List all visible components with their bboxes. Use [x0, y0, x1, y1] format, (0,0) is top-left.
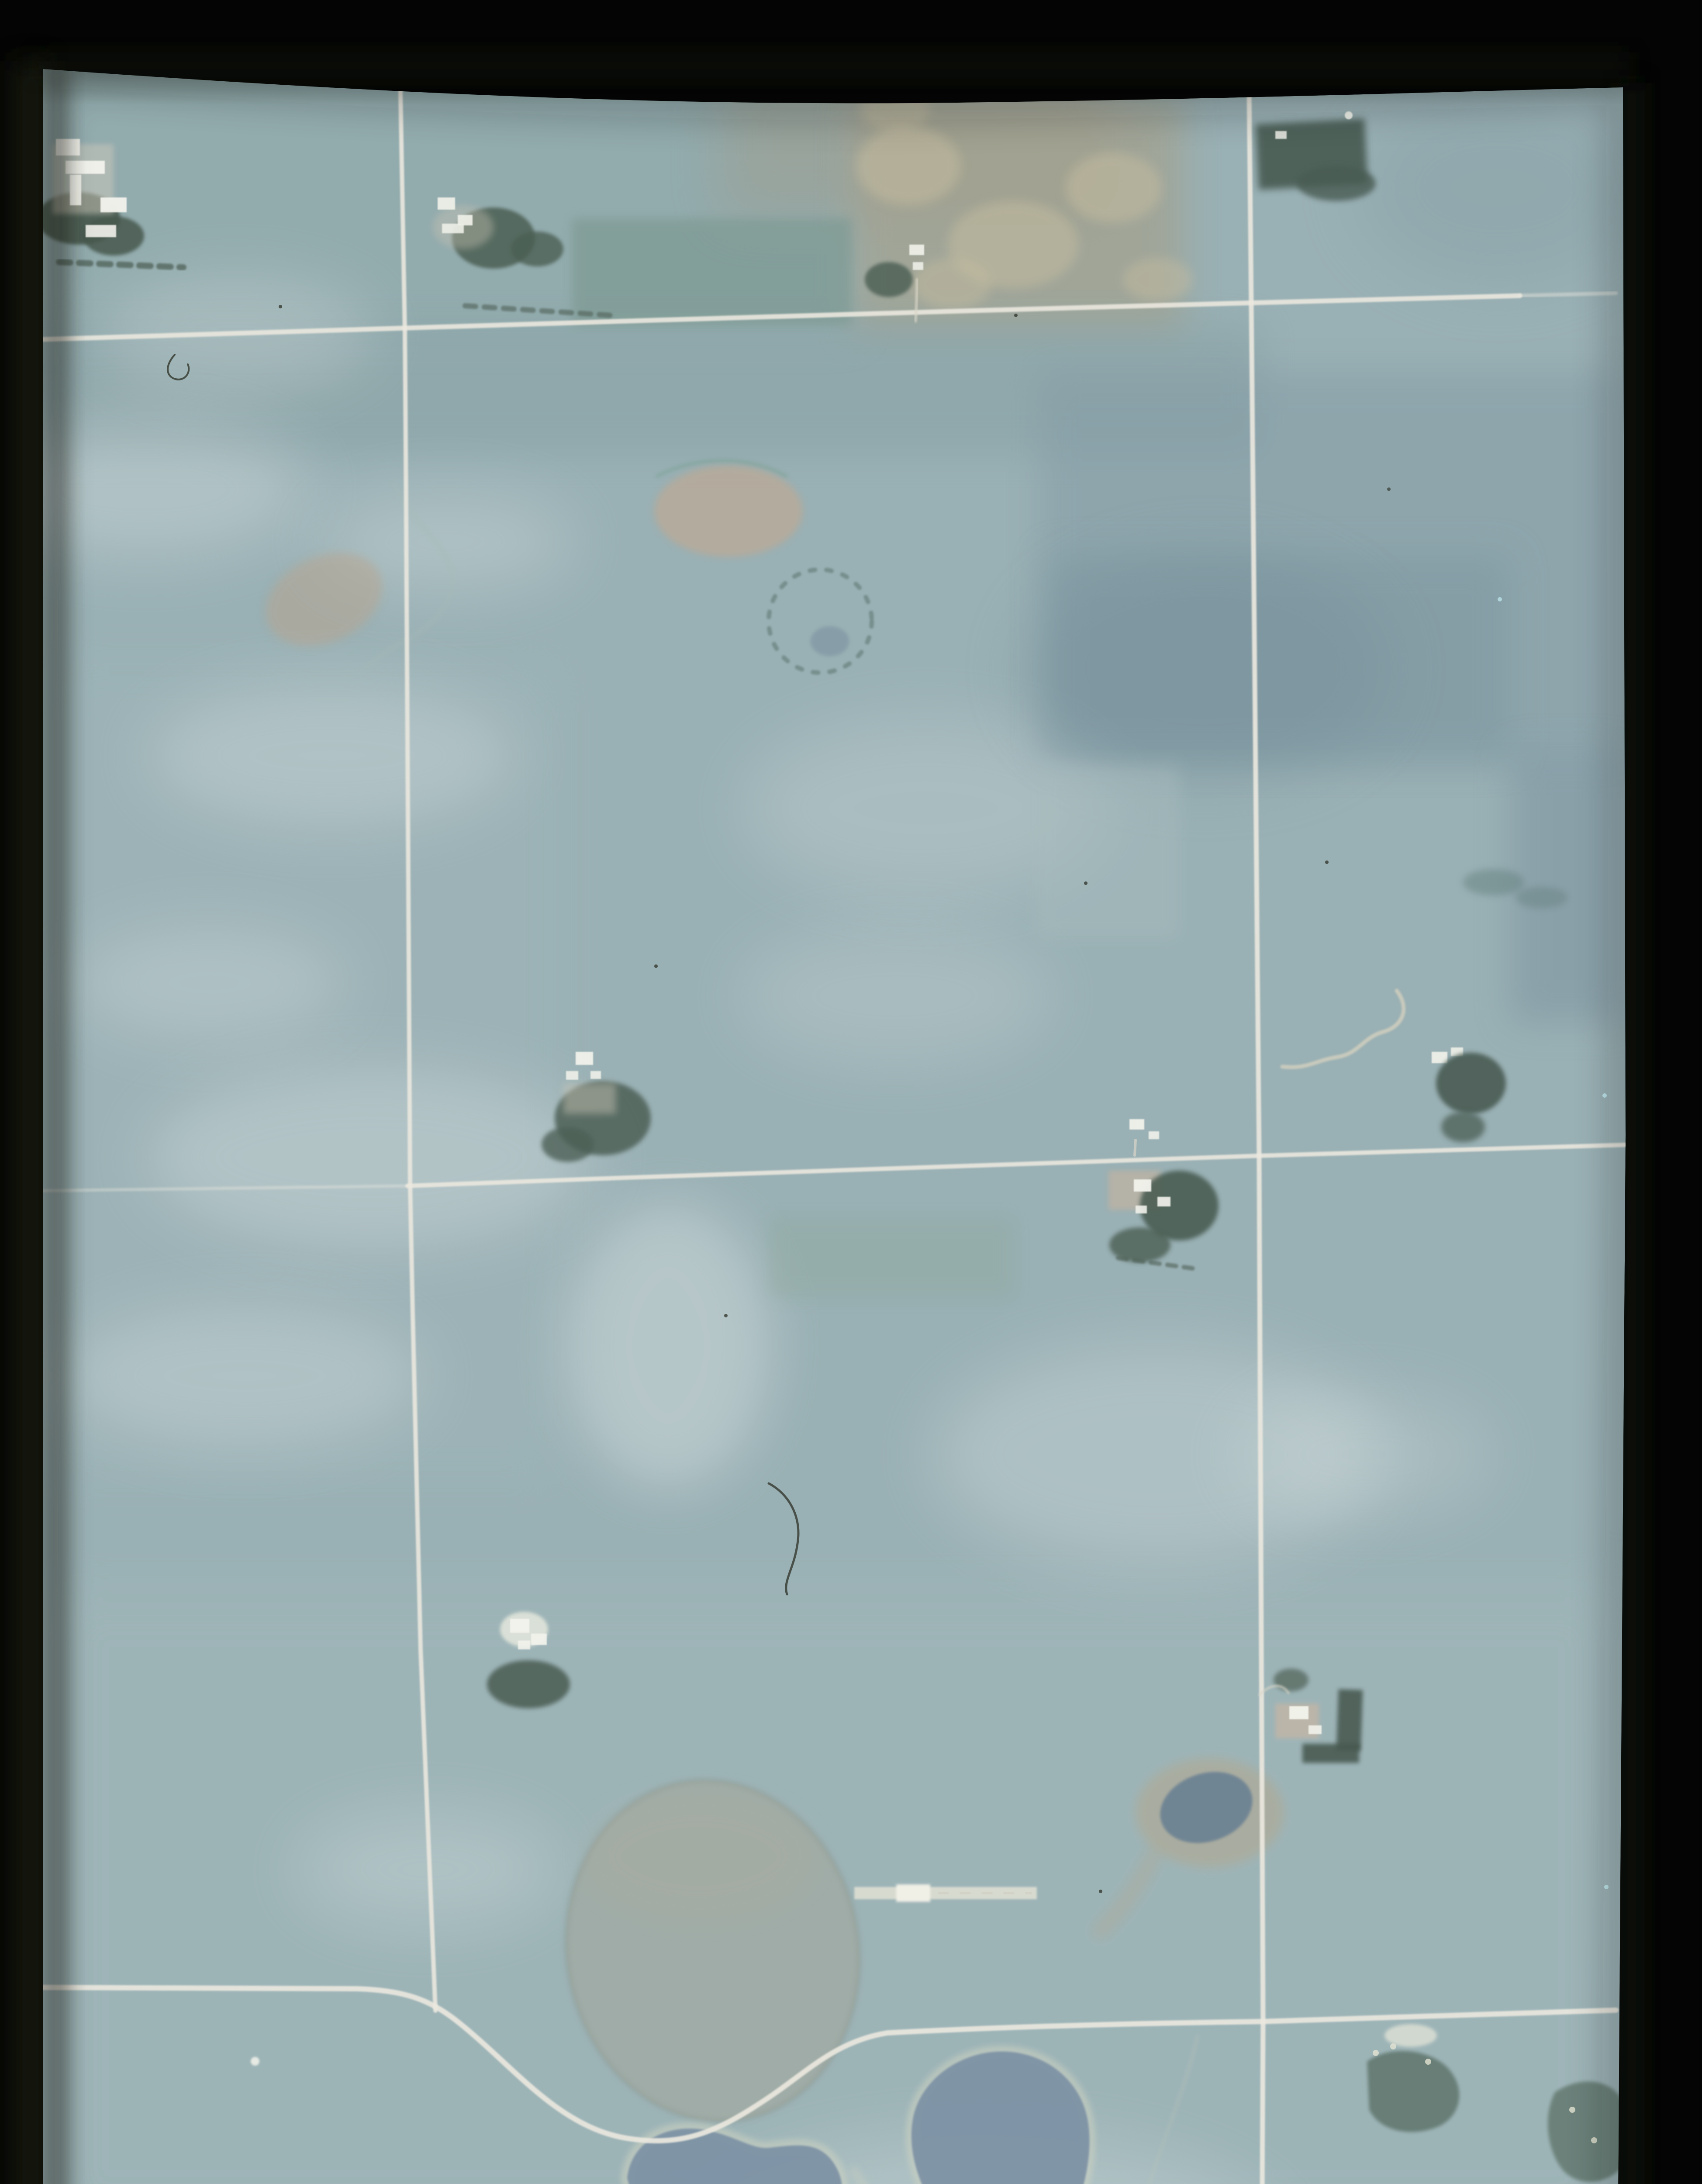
farm9-trees — [487, 1660, 570, 1708]
farm6-building-north-2 — [1149, 1131, 1159, 1139]
farm2-building — [442, 224, 464, 233]
cloud-streak-vertical — [563, 1201, 773, 1489]
farm9-building — [510, 1619, 529, 1633]
salmon-bare-patch — [654, 465, 803, 557]
farm5-building — [590, 1071, 601, 1079]
dust-speck — [1099, 1890, 1102, 1893]
airstrip-bright-blob — [896, 1884, 930, 1902]
marsh-white-patch — [1384, 2024, 1437, 2047]
dust-speck — [724, 1314, 728, 1317]
farm8-trees-small — [1274, 1669, 1308, 1691]
dark-smudge — [1516, 887, 1568, 909]
white-dot-field — [251, 2057, 259, 2066]
farm9-building-3 — [518, 1641, 530, 1649]
farm6-building-south — [1134, 1179, 1151, 1192]
cyan-speck — [1602, 1093, 1607, 1098]
farm6-building-south-2 — [1157, 1197, 1170, 1206]
aerial-photo-scene — [0, 0, 1702, 2184]
farm2-trees-2 — [511, 232, 563, 266]
field-green-band — [769, 1219, 1013, 1297]
farm1-building — [66, 161, 105, 174]
marsh-speckle — [1425, 2059, 1431, 2065]
marsh-speckle — [1373, 2050, 1379, 2056]
cloud-patch — [144, 1066, 598, 1249]
farm5-trees-2 — [542, 1127, 594, 1162]
cloud-patch — [70, 922, 349, 1044]
dust-speck — [1014, 314, 1018, 317]
farm8-trees-vertical — [1336, 1689, 1363, 1751]
farm3-lane — [915, 280, 917, 321]
cloud-patch — [61, 1302, 428, 1450]
buff-soil-blob — [913, 258, 991, 310]
dark-soft-patch — [1022, 555, 1389, 782]
farm5-yard — [563, 1083, 616, 1114]
cloud-patch — [738, 926, 1053, 1066]
farm8-building-2 — [1308, 1725, 1322, 1734]
farm2-building — [438, 197, 455, 210]
cloud-patch — [144, 681, 520, 830]
aerial-photo — [0, 61, 1638, 2184]
pond-ellipse-tan-tint — [585, 1795, 812, 1918]
farm1-building — [86, 225, 116, 237]
mount-olive-top — [39, 52, 1629, 79]
farm7-building — [1432, 1052, 1447, 1063]
field-dark-green — [572, 218, 852, 325]
farm7-trees-2 — [1441, 1112, 1485, 1142]
farm5-building — [576, 1052, 593, 1065]
cloud-patch — [1232, 1389, 1494, 1520]
farm4-building — [1275, 131, 1287, 139]
dust-speck — [654, 964, 658, 968]
farm5-building — [566, 1071, 578, 1080]
buff-soil-blob — [1066, 153, 1162, 223]
road-horizontal-north-fade — [1520, 293, 1616, 296]
farm8-building — [1289, 1706, 1308, 1719]
farm9-building-2 — [531, 1634, 547, 1645]
slide-scan — [0, 0, 1702, 2184]
farm7-trees — [1436, 1053, 1506, 1114]
farm1-building — [100, 197, 127, 212]
dark-smudge — [1463, 869, 1524, 895]
farm8-trees-horizontal — [1302, 1744, 1359, 1763]
farm4-building-dot — [1345, 111, 1353, 119]
farm6-lane — [1135, 1140, 1136, 1155]
farm3-building — [909, 245, 924, 255]
field-light-rect — [1035, 764, 1179, 939]
farm1-building — [70, 175, 81, 205]
dark-soft-patch — [1358, 92, 1638, 284]
farm3-building — [913, 262, 923, 270]
dust-speck — [1084, 881, 1087, 885]
cyan-speck — [1498, 597, 1502, 601]
dust-speck — [279, 305, 282, 308]
farm4-trees-2 — [1297, 166, 1376, 201]
dust-speck — [1387, 487, 1391, 491]
farm3-trees — [865, 262, 913, 297]
dust-speck — [1325, 860, 1329, 864]
farm6-building-south-3 — [1136, 1206, 1147, 1213]
marsh-speckle — [1390, 2043, 1396, 2049]
buff-soil-blob — [1122, 258, 1192, 301]
marsh-speckle — [1591, 2137, 1597, 2143]
farm6-building-north — [1129, 1119, 1144, 1130]
slough-water — [811, 626, 849, 656]
marsh-speckle — [1569, 2107, 1575, 2113]
mount-olive-left — [13, 61, 48, 2184]
buff-soil-blob — [856, 127, 961, 205]
